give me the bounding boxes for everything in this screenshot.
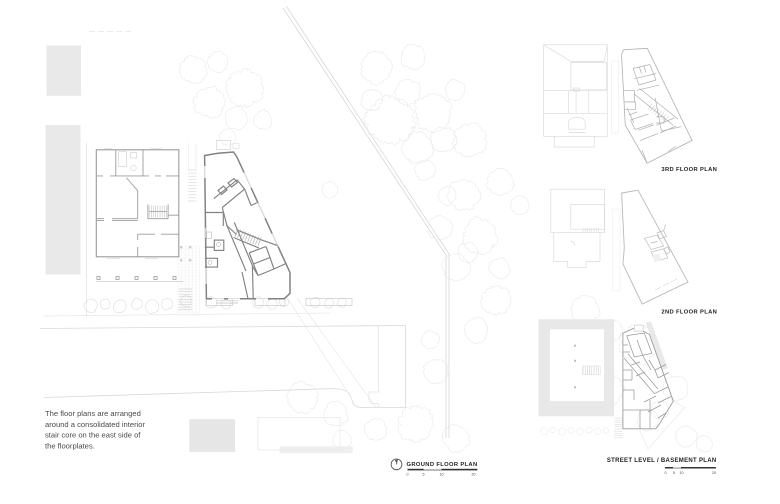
svg-text:the floorplates.: the floorplates. [45,441,95,450]
svg-text:10: 10 [440,473,444,477]
svg-text:0: 0 [407,473,409,477]
svg-text:GROUND FLOOR PLAN: GROUND FLOOR PLAN [407,462,478,468]
svg-text:0: 0 [665,471,667,475]
svg-text:The floor plans are arranged: The floor plans are arranged [45,409,141,418]
svg-text:10: 10 [680,471,684,475]
svg-text:STREET LEVEL / BASEMENT PLAN: STREET LEVEL / BASEMENT PLAN [607,458,717,464]
svg-text:around a consolidated interior: around a consolidated interior [45,420,146,429]
svg-text:2ND FLOOR PLAN: 2ND FLOOR PLAN [661,310,717,316]
svg-text:20: 20 [472,473,476,477]
svg-text:20: 20 [712,471,716,475]
svg-text:5: 5 [673,471,675,475]
svg-text:5: 5 [423,473,425,477]
svg-text:stair core on the east side of: stair core on the east side of [45,431,141,440]
svg-text:3RD FLOOR PLAN: 3RD FLOOR PLAN [661,167,717,173]
